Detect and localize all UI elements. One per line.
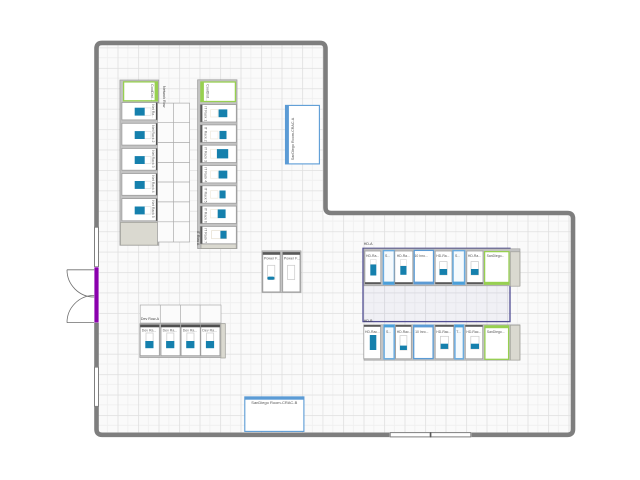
- svg-text:HD-Rac...: HD-Rac...: [365, 330, 380, 334]
- svg-text:HD-B: HD-B: [364, 319, 373, 323]
- svg-text:IT Rack 2: IT Rack 2: [203, 127, 207, 142]
- svg-text:SanDiego Room-CRAC-B: SanDiego Room-CRAC-B: [251, 400, 297, 405]
- svg-text:IT Rack 1: IT Rack 1: [203, 106, 207, 121]
- svg-text:Power F...: Power F...: [264, 257, 280, 261]
- svg-text:CoolDist...: CoolDist...: [150, 84, 154, 101]
- svg-text:Network Row: Network Row: [162, 86, 166, 108]
- svg-text:HD-Ra...: HD-Ra...: [366, 254, 379, 258]
- svg-text:Dev Ra...: Dev Ra...: [142, 328, 157, 332]
- svg-text:CoolDist...: CoolDist...: [205, 84, 209, 101]
- svg-text:HD-Rac...: HD-Rac...: [436, 330, 451, 334]
- svg-text:SanDiego...: SanDiego...: [487, 254, 505, 258]
- svg-text:Dev Ra...: Dev Ra...: [202, 328, 217, 332]
- svg-text:10 Inro...: 10 Inro...: [415, 254, 428, 258]
- svg-text:S...: S...: [455, 254, 460, 258]
- svg-text:IT Rack 7: IT Rack 7: [203, 228, 207, 243]
- svg-text:Net Rack 3: Net Rack 3: [151, 150, 155, 167]
- svg-text:Dev Row-A: Dev Row-A: [141, 317, 160, 321]
- svg-text:S...: S...: [386, 330, 391, 334]
- svg-text:HD-A: HD-A: [364, 242, 373, 246]
- svg-text:IT Row A: IT Row A: [196, 231, 200, 246]
- svg-text:Net Ra...: Net Ra...: [151, 104, 155, 118]
- svg-text:HD-Rac...: HD-Rac...: [466, 330, 481, 334]
- svg-text:SanDiego...: SanDiego...: [487, 330, 505, 334]
- svg-text:HD-Ra...: HD-Ra...: [468, 254, 481, 258]
- svg-text:Dev Ra...: Dev Ra...: [183, 328, 198, 332]
- svg-text:Net Rack 2: Net Rack 2: [151, 125, 155, 142]
- svg-text:Power F...: Power F...: [284, 257, 300, 261]
- svg-text:HD-Ra...: HD-Ra...: [397, 254, 410, 258]
- svg-text:S...: S...: [385, 254, 390, 258]
- svg-text:IT Rack 4: IT Rack 4: [203, 167, 207, 182]
- svg-text:Net Rack 5: Net Rack 5: [151, 200, 155, 217]
- svg-text:T...: T...: [456, 330, 461, 334]
- svg-text:Dev Ra...: Dev Ra...: [163, 328, 178, 332]
- svg-text:SanDiego Room-CRAC-A: SanDiego Room-CRAC-A: [291, 117, 295, 160]
- svg-text:10 Inro...: 10 Inro...: [415, 330, 428, 334]
- svg-text:HD-Rac...: HD-Rac...: [397, 330, 412, 334]
- svg-text:IT Rack 6: IT Rack 6: [203, 208, 207, 223]
- svg-text:HD-Ra...: HD-Ra...: [436, 254, 449, 258]
- svg-text:IT Rack 5: IT Rack 5: [203, 188, 207, 203]
- svg-text:IT Rack 3: IT Rack 3: [203, 147, 207, 162]
- svg-text:Net Rack 4: Net Rack 4: [151, 175, 155, 192]
